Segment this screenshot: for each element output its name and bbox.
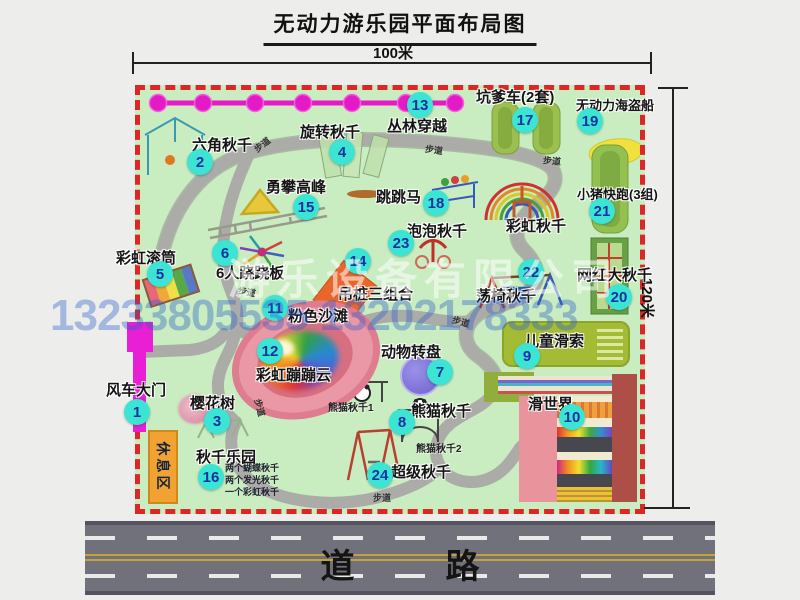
badge-swing-park: 16 bbox=[198, 464, 224, 490]
label-rainbow-bounce-cloud: 彩虹蹦蹦云 bbox=[256, 364, 331, 385]
windmill-gate-shape bbox=[127, 322, 153, 352]
badge-hanging-post-combo: 14 bbox=[345, 248, 371, 274]
road-label: 道 路 bbox=[85, 539, 715, 588]
dimension-line-right bbox=[672, 87, 674, 509]
label-hanging-post-combo: 吊桩三组合 bbox=[338, 283, 413, 304]
label-rainbow-swing: 彩虹秋千 bbox=[506, 215, 566, 236]
label-big-net-swing: 网红大秋千 bbox=[577, 264, 652, 285]
badge-peak-climbing: 15 bbox=[293, 194, 319, 220]
badge-kengdie-car: 17 bbox=[512, 107, 538, 133]
rest-area-box: 休息区 bbox=[148, 430, 178, 504]
dimension-tick bbox=[644, 507, 690, 509]
badge-pirate-ship: 19 bbox=[577, 108, 603, 134]
badge-rainbow-bounce-cloud: 12 bbox=[257, 338, 283, 364]
road: 道 路 bbox=[85, 521, 715, 595]
badge-jumping-horse: 18 bbox=[423, 190, 449, 216]
trail-label: 步道 bbox=[424, 142, 444, 157]
dimension-width-label: 100米 bbox=[373, 42, 413, 63]
swing-park-note-1: 两个蝴蝶秋千 bbox=[225, 463, 279, 474]
badge-bubble-swing: 23 bbox=[388, 230, 414, 256]
badge-animal-carousel: 7 bbox=[427, 359, 453, 385]
badge-six-person-seesaw: 6 bbox=[212, 240, 238, 266]
badge-rotating-swing: 4 bbox=[329, 139, 355, 165]
badge-pink-beach: 11 bbox=[262, 295, 288, 321]
badge-super-swing: 24 bbox=[367, 462, 393, 488]
badge-big-net-swing: 20 bbox=[606, 284, 632, 310]
dimension-tick bbox=[132, 52, 134, 74]
page-title: 无动力游乐园平面布局图 bbox=[264, 8, 537, 46]
label-super-swing: 超级秋千 bbox=[391, 461, 451, 482]
badge-panda-swing: 8 bbox=[389, 409, 415, 435]
badge-rocking-chair-swing: 22 bbox=[518, 259, 544, 285]
badge-kids-zipline: 9 bbox=[514, 343, 540, 369]
label-panda-swing: 熊猫秋千 bbox=[411, 400, 471, 421]
label-jumping-horse: 跳跳马 bbox=[376, 186, 421, 207]
badge-hexagon-swing: 2 bbox=[187, 149, 213, 175]
badge-rainbow-roller: 5 bbox=[147, 261, 173, 287]
badge-piggy-run: 21 bbox=[589, 198, 615, 224]
label-kengdie-car: 坑爹车(2套) bbox=[476, 86, 554, 107]
slide-world-red-strip bbox=[612, 374, 637, 502]
dimension-tick bbox=[650, 52, 652, 74]
rest-area-label: 休息区 bbox=[153, 442, 173, 493]
label-piggy-run: 小猪快跑(3组) bbox=[577, 184, 658, 203]
label-bubble-swing: 泡泡秋千 bbox=[407, 220, 467, 241]
label-jungle-crossing: 丛林穿越 bbox=[387, 115, 447, 136]
badge-slide-world: 10 bbox=[559, 404, 585, 430]
dimension-tick bbox=[658, 87, 688, 89]
label-panda-swing-1: 熊猫秋千1 bbox=[328, 399, 374, 414]
label-rocking-chair-swing: 荡椅秋千 bbox=[476, 285, 536, 306]
badge-cherry-tree: 3 bbox=[204, 408, 230, 434]
trail-label: 步道 bbox=[373, 491, 391, 504]
label-pink-beach: 粉色沙滩 bbox=[288, 305, 348, 326]
label-animal-carousel: 动物转盘 bbox=[381, 341, 441, 362]
swing-park-note-2: 两个发光秋千 bbox=[225, 475, 279, 486]
label-peak-climbing: 勇攀高峰 bbox=[266, 176, 326, 197]
park-plan-image: 无动力游乐园平面布局图 100米 120米 bbox=[0, 0, 800, 600]
badge-jungle-crossing: 13 bbox=[407, 92, 433, 118]
zipline-ladder bbox=[597, 328, 623, 360]
label-panda-swing-2: 熊猫秋千2 bbox=[416, 440, 462, 455]
badge-windmill-gate: 1 bbox=[124, 399, 150, 425]
trail-label: 步道 bbox=[542, 153, 561, 168]
swing-park-note-3: 一个彩虹秋千 bbox=[225, 487, 279, 498]
label-rotating-swing: 旋转秋千 bbox=[300, 121, 360, 142]
label-windmill-gate: 风车大门 bbox=[106, 379, 166, 400]
